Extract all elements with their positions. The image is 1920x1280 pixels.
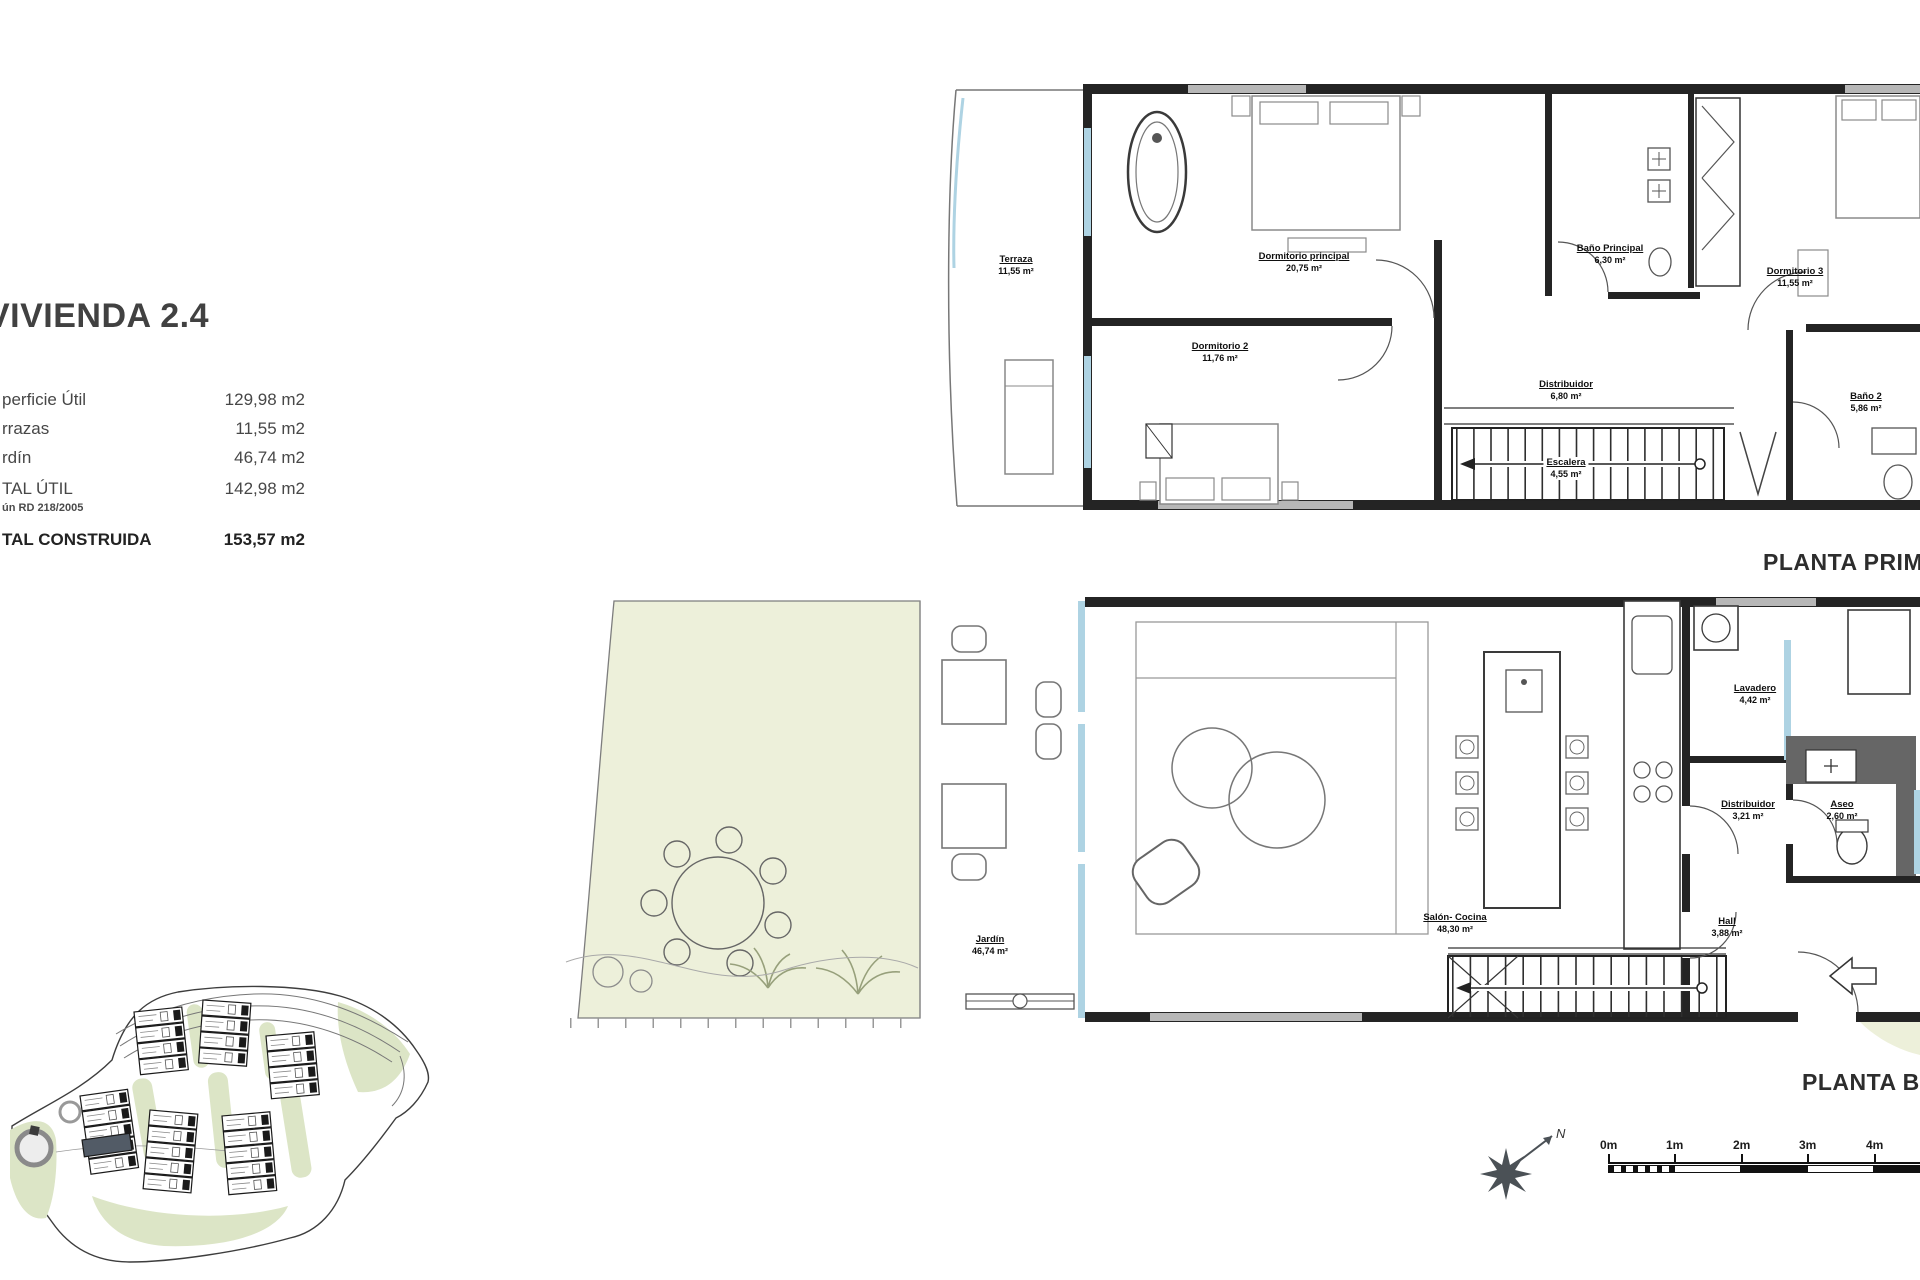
toilet <box>1836 820 1868 864</box>
scale-tick-label: 4m <box>1866 1138 1883 1152</box>
north-label: N <box>1556 1126 1566 1141</box>
scale-bar-line <box>1608 1162 1920 1164</box>
room-label-dormitorio-principal: Dormitorio principal20,75 m² <box>1259 251 1350 274</box>
area-row-total-construida: TAL CONSTRUIDA 153,57 m2 <box>2 530 305 550</box>
porch-furniture <box>942 626 1061 880</box>
area-row-value: 142,98 m2 <box>225 479 305 499</box>
scale-tick <box>1874 1154 1876 1162</box>
area-row-total-util: TAL ÚTIL 142,98 m2 <box>2 479 305 499</box>
scale-segment <box>1874 1165 1920 1173</box>
ground-floor-plan-drawing <box>560 595 1920 1055</box>
stairs-first-floor <box>1444 408 1734 500</box>
room-label-dormitorio-2: Dormitorio 211,76 m² <box>1192 341 1248 364</box>
room-label-jardin: Jardín46,74 m² <box>972 934 1008 957</box>
washer <box>1694 606 1738 650</box>
room-label-distribuidor-pb: Distribuidor3,21 m² <box>1721 799 1775 822</box>
normativa-note: ún RD 218/2005 <box>2 502 83 514</box>
area-row-value: 11,55 m2 <box>235 419 305 439</box>
scale-tick <box>1807 1154 1809 1162</box>
room-label-bano-2: Baño 25,86 m² <box>1850 391 1882 414</box>
room-label-hall: Hall3,88 m² <box>1711 916 1742 939</box>
scale-segment <box>1741 1165 1807 1173</box>
area-row-terrazas: rrazas 11,55 m2 <box>2 419 305 439</box>
sun-lounger <box>1005 360 1053 474</box>
terrace-edge <box>949 90 957 506</box>
kitchen-island <box>1456 652 1588 908</box>
scale-tick-label: 2m <box>1733 1138 1750 1152</box>
compass: N <box>1455 1118 1585 1223</box>
area-row-label: rrazas <box>2 419 49 439</box>
window-glazing <box>1078 601 1085 1018</box>
compass-rose <box>1480 1148 1532 1200</box>
scale-tick <box>1608 1154 1610 1162</box>
scale-tick <box>1741 1154 1743 1162</box>
window-glazing <box>1084 128 1091 236</box>
scale-tick-label: 3m <box>1799 1138 1816 1152</box>
bed-principal <box>1232 96 1420 252</box>
bathroom2-fixtures <box>1872 428 1916 499</box>
terrace-glazing <box>954 98 963 268</box>
area-row-label: rdín <box>2 448 31 468</box>
wardrobe <box>1696 98 1740 286</box>
bathtub <box>1128 112 1186 232</box>
window-glazing <box>1084 356 1091 468</box>
room-label-aseo: Aseo2,60 m² <box>1826 799 1857 822</box>
scale-tick-label: 1m <box>1666 1138 1683 1152</box>
void-mark <box>1740 432 1776 494</box>
area-row-label: perficie Útil <box>2 390 86 410</box>
scale-bar: 0m 1m 2m 3m 4m <box>1596 1138 1920 1182</box>
scale-segment <box>1608 1165 1674 1173</box>
scale-segment <box>1807 1165 1874 1173</box>
floor-plan-sheet: VIVIENDA 2.4 perficie Útil 129,98 m2 rra… <box>0 0 1920 1280</box>
bench <box>966 994 1074 1009</box>
laundry-cabinet <box>1848 610 1910 694</box>
door-arcs <box>1338 242 1839 448</box>
sofa-group <box>1127 622 1428 934</box>
first-floor-plan-drawing <box>940 80 1920 516</box>
shaft <box>1146 424 1172 458</box>
scale-segment <box>1674 1165 1741 1173</box>
bathroom-fixtures <box>1648 148 1671 276</box>
front-garden <box>1860 1022 1920 1055</box>
room-label-bano-principal: Baño Principal6,30 m² <box>1577 243 1644 266</box>
scale-tick <box>1674 1154 1676 1162</box>
area-row-jardin: rdín 46,74 m2 <box>2 448 305 468</box>
area-row-value: 153,57 m2 <box>224 530 305 550</box>
kitchen-counter <box>1624 601 1680 949</box>
room-label-dormitorio-3: Dormitorio 311,55 m² <box>1767 266 1823 289</box>
site-plan <box>0 980 430 1280</box>
garden-area <box>578 601 920 1018</box>
room-label-terraza: Terraza11,55 m² <box>998 254 1034 277</box>
area-row-value: 46,74 m2 <box>234 448 305 468</box>
caption-planta-primera: PLANTA PRIMERA <box>1763 549 1920 576</box>
area-row-superficie-util: perficie Útil 129,98 m2 <box>2 390 305 410</box>
room-label-distribuidor-p1: Distribuidor6,80 m² <box>1539 379 1593 402</box>
room-label-lavadero: Lavadero4,42 m² <box>1734 683 1776 706</box>
scale-tick-label: 0m <box>1600 1138 1617 1152</box>
caption-planta-baja: PLANTA BAJA <box>1802 1069 1920 1096</box>
page-title: VIVIENDA 2.4 <box>0 297 209 336</box>
area-row-value: 129,98 m2 <box>225 390 305 410</box>
room-label-escalera: Escalera4,55 m² <box>1543 457 1588 480</box>
area-row-label: TAL CONSTRUIDA <box>2 530 152 550</box>
room-label-salon-cocina: Salón- Cocina48,30 m² <box>1423 912 1486 935</box>
area-row-label: TAL ÚTIL <box>2 479 73 499</box>
